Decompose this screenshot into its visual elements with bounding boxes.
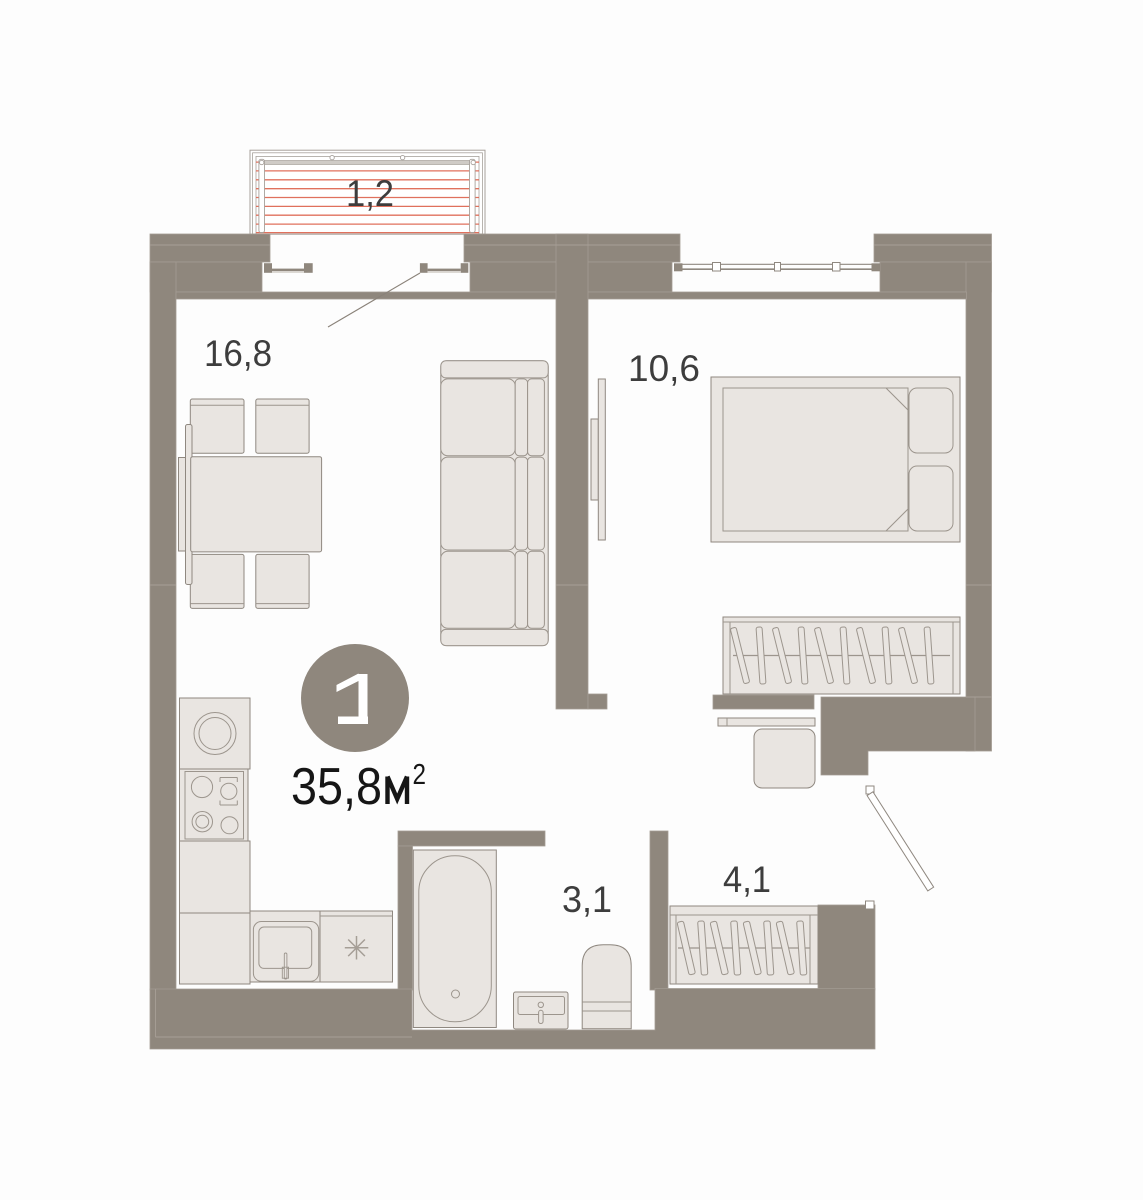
svg-text:1,2: 1,2 bbox=[346, 173, 394, 214]
svg-text:35,8: 35,8 bbox=[291, 758, 382, 816]
svg-text:4,1: 4,1 bbox=[723, 859, 771, 900]
svg-text:2: 2 bbox=[413, 759, 427, 791]
svg-text:10,6: 10,6 bbox=[628, 348, 700, 389]
svg-text:3,1: 3,1 bbox=[562, 879, 612, 920]
svg-text:16,8: 16,8 bbox=[204, 333, 272, 374]
